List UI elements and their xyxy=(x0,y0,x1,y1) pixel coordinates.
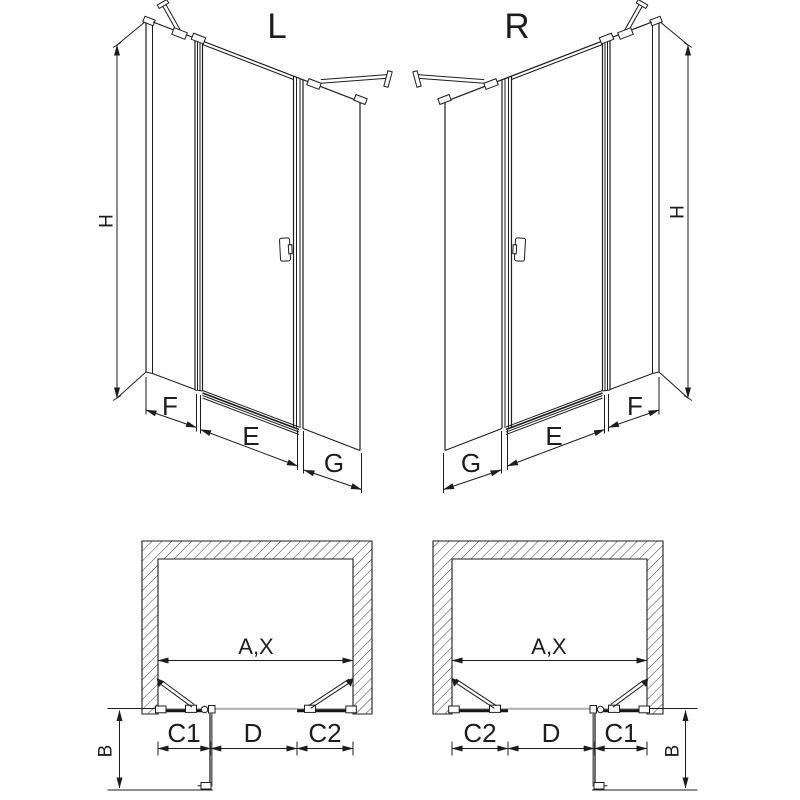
dim-label-e-right: E xyxy=(545,421,562,451)
glass-assembly xyxy=(156,705,357,713)
diagram-canvas: L R H H F E G G E F A,X A,X C1 D C2 C2 D… xyxy=(0,0,800,800)
wall-clamp xyxy=(156,706,167,713)
dim-label-b-right: B xyxy=(663,745,684,758)
door-handle-plan xyxy=(201,783,211,790)
strut-clamp xyxy=(307,79,321,90)
pivot-block xyxy=(209,706,216,714)
dim-label-d-left: D xyxy=(244,718,263,748)
elevation-right-linework xyxy=(413,0,692,493)
dim-label-e-left: E xyxy=(242,421,259,451)
elevation-left-linework xyxy=(113,0,392,493)
dim-label-f-left: F xyxy=(162,391,178,421)
plan-right-wall xyxy=(433,541,663,714)
technical-diagram-svg: L R H H F E G G E F A,X A,X C1 D C2 C2 D… xyxy=(0,0,800,800)
dim-label-c2-left: C2 xyxy=(308,718,341,748)
dim-label-f-right: F xyxy=(627,391,643,421)
door-handle xyxy=(279,238,292,262)
hinge-post xyxy=(191,33,205,391)
dim-label-h-left: H xyxy=(97,214,118,228)
variant-title-right: R xyxy=(504,7,529,46)
plan-strut-right xyxy=(309,678,354,708)
wall-top-cap xyxy=(143,16,155,26)
variant-title-left: L xyxy=(267,7,286,46)
dim-label-c1-left: C1 xyxy=(167,718,200,748)
dim-label-g-left: G xyxy=(324,448,344,478)
strut-clamp xyxy=(172,28,188,40)
strut-wall-foot xyxy=(384,71,392,88)
side-wall-panel xyxy=(117,16,155,398)
support-strut-right xyxy=(307,71,392,90)
dim-label-b-left: B xyxy=(96,745,117,758)
edge-top-cap xyxy=(354,95,367,105)
hinge-top-cap xyxy=(191,33,205,44)
dim-label-g-right: G xyxy=(461,448,481,478)
dim-label-ax-left: A,X xyxy=(238,634,274,659)
strut-wall-foot xyxy=(346,678,354,687)
support-strut-left xyxy=(157,0,187,39)
door-panel xyxy=(203,45,300,435)
labels: L R H H F E G G E F A,X A,X C1 D C2 C2 D… xyxy=(96,7,689,757)
plan-strut-left xyxy=(157,678,195,707)
dim-label-c1-right: C1 xyxy=(604,718,637,748)
dim-label-d-right: D xyxy=(542,718,561,748)
dim-label-h-right: H xyxy=(668,205,689,219)
wall-clamp xyxy=(346,706,357,713)
fixed-panel-f xyxy=(153,374,196,390)
fixed-panel-g xyxy=(294,77,368,451)
dim-label-ax-right: A,X xyxy=(531,634,567,659)
pivot-hinge xyxy=(201,706,207,712)
dim-label-c2-right: C2 xyxy=(463,718,496,748)
plan-left-wall xyxy=(142,541,372,714)
